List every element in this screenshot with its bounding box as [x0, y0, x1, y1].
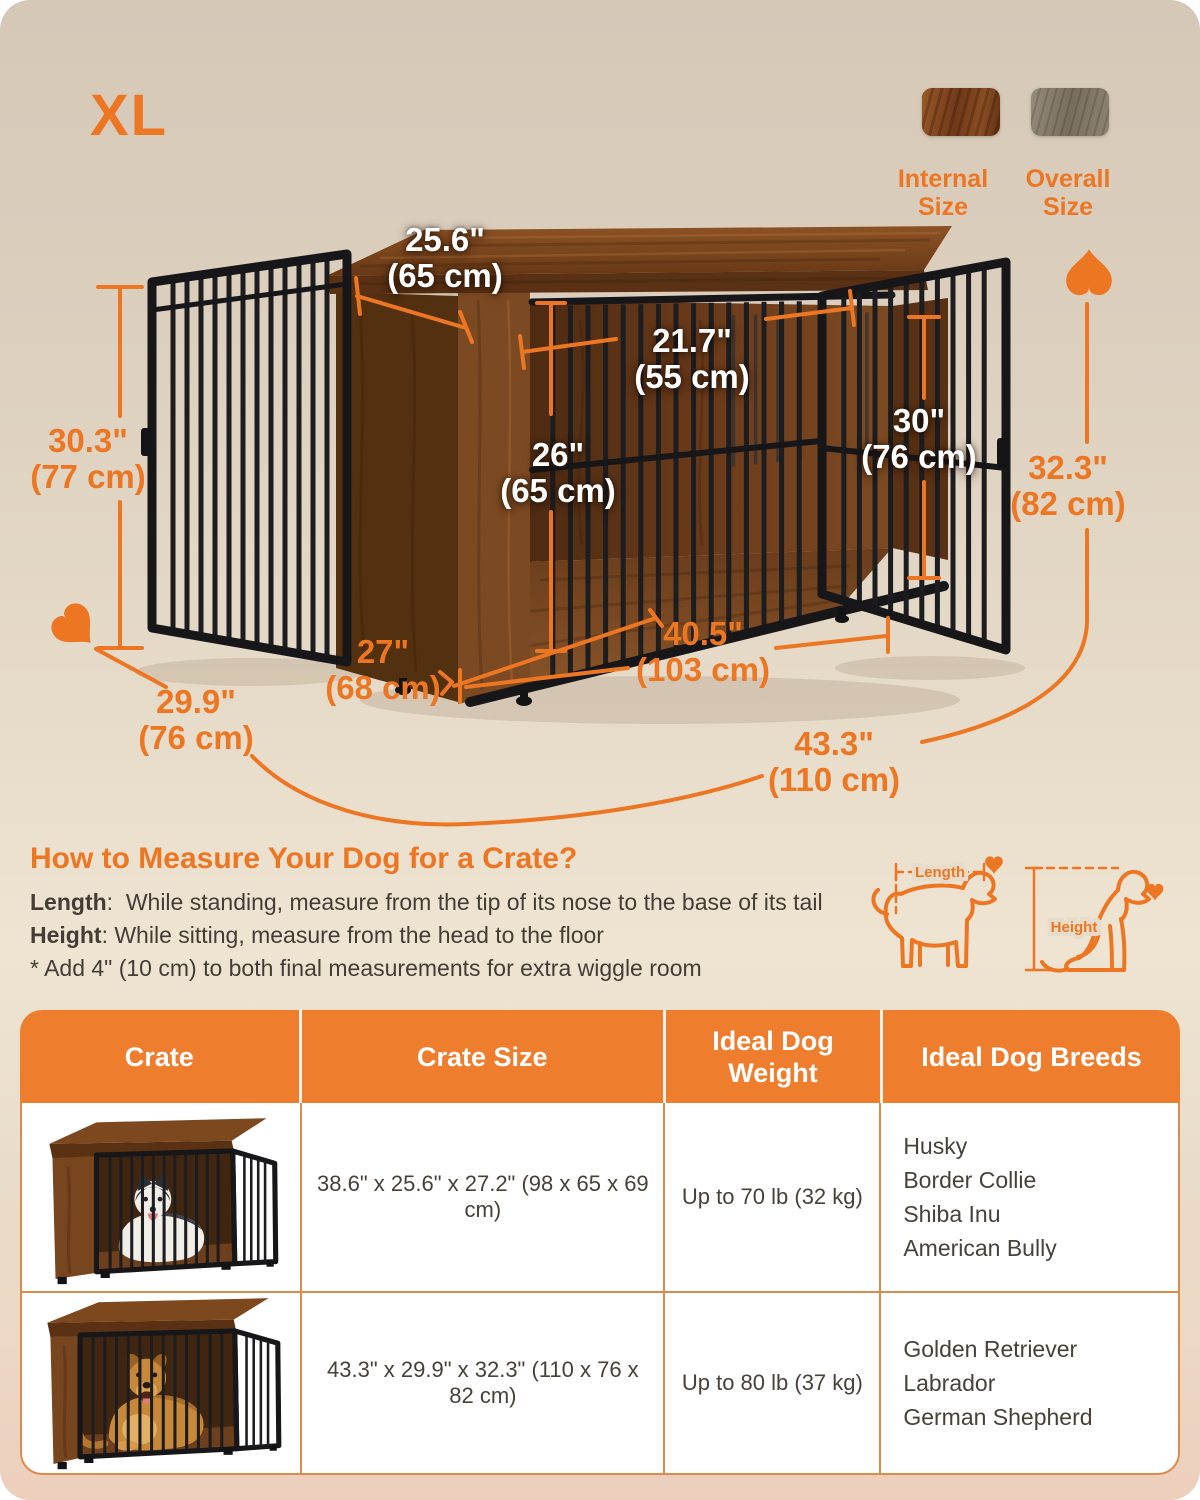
header-crate-size: Crate Size — [299, 1010, 663, 1103]
measure-note: * Add 4" (10 cm) to both final measureme… — [30, 954, 900, 983]
dim-inner-height: 26"(65 cm) — [500, 437, 616, 509]
table-row-medium-crate: 38.6" x 25.6" x 27.2" (98 x 65 x 69 cm) … — [22, 1103, 1178, 1291]
xl-crate-image — [22, 1293, 300, 1473]
dog-breeds-list: Golden RetrieverLabrador German Shepherd — [881, 1332, 1092, 1434]
dim-overall-width: 43.3"(110 cm) — [768, 726, 900, 798]
dog-crate-infographic: XL Internal Size Overall Size — [0, 0, 1200, 1500]
internal-size-wood-swatch — [922, 88, 1000, 136]
dog-breeds-list: HuskyBorder Collie Shiba InuAmerican Bul… — [881, 1129, 1056, 1265]
svg-text:Length: Length — [915, 864, 965, 881]
dim-side-height: 30.3"(77 cm) — [30, 423, 146, 495]
svg-text:Height: Height — [1051, 919, 1098, 936]
measure-length-line: Length: While standing, measure from the… — [30, 888, 900, 917]
crate-comparison-table: Crate Crate Size Ideal Dog Weight Ideal … — [20, 1010, 1180, 1475]
dog-weight-value: Up to 70 lb (32 kg) — [670, 1184, 875, 1210]
dim-base-depth: 27"(68 cm) — [325, 634, 441, 706]
overall-size-wood-swatch — [1031, 88, 1109, 136]
size-label: XL — [90, 82, 168, 149]
dim-inner-width: 40.5"(103 cm) — [636, 616, 770, 688]
dim-door-height: 30"(76 cm) — [861, 403, 977, 475]
header-ideal-dog-breeds: Ideal Dog Breeds — [880, 1010, 1180, 1103]
table-row-xl-crate: 43.3" x 29.9" x 32.3" (110 x 76 x 82 cm)… — [22, 1291, 1178, 1473]
measure-guide-section: How to Measure Your Dog for a Crate? Len… — [30, 842, 900, 987]
table-header-row: Crate Crate Size Ideal Dog Weight Ideal … — [20, 1010, 1180, 1103]
dog-weight-value: Up to 80 lb (37 kg) — [670, 1370, 875, 1396]
sitting-dog-height-icon: Height — [1018, 852, 1183, 1002]
header-ideal-dog-weight: Ideal Dog Weight — [663, 1010, 880, 1103]
measure-guide-title: How to Measure Your Dog for a Crate? — [30, 842, 900, 876]
crate-size-value: 43.3" x 29.9" x 32.3" (110 x 76 x 82 cm) — [302, 1357, 663, 1409]
dim-inner-depth: 21.7"(55 cm) — [634, 323, 750, 395]
crate-size-value: 38.6" x 25.6" x 27.2" (98 x 65 x 69 cm) — [302, 1171, 663, 1223]
left-door-open — [141, 254, 347, 662]
dim-top-depth: 25.6"(65 cm) — [387, 222, 503, 294]
medium-crate-image — [22, 1103, 300, 1291]
measure-height-line: Height: While sitting, measure from the … — [30, 921, 900, 950]
header-crate: Crate — [20, 1010, 299, 1103]
dim-overall-depth: 29.9"(76 cm) — [138, 684, 254, 756]
standing-dog-length-icon: Length — [866, 852, 1016, 1002]
dim-overall-height: 32.3"(82 cm) — [1010, 450, 1126, 522]
